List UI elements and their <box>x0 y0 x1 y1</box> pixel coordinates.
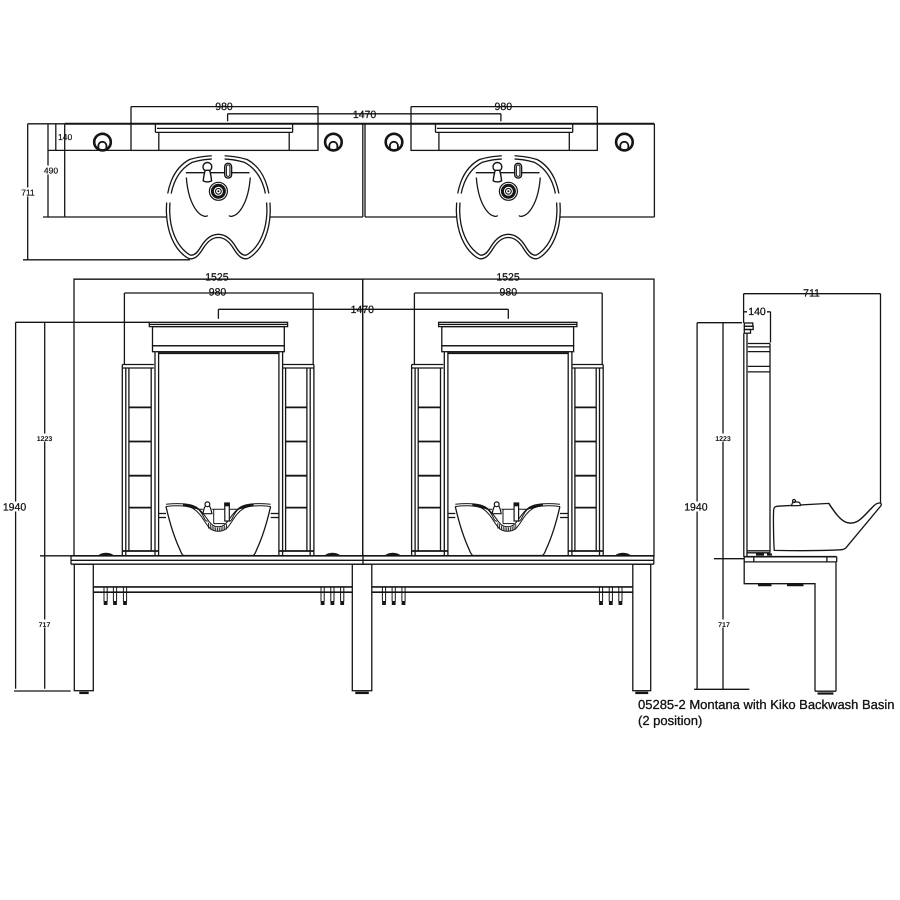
svg-text:(2 position): (2 position) <box>638 713 702 728</box>
svg-text:1940: 1940 <box>684 501 708 513</box>
svg-text:1940: 1940 <box>3 501 27 513</box>
svg-text:980: 980 <box>495 101 513 113</box>
svg-text:1470: 1470 <box>351 304 375 316</box>
svg-text:717: 717 <box>39 622 51 629</box>
svg-text:1223: 1223 <box>37 436 53 443</box>
svg-text:980: 980 <box>209 287 227 299</box>
svg-text:140: 140 <box>748 306 766 318</box>
svg-text:980: 980 <box>500 287 518 299</box>
svg-text:1470: 1470 <box>353 109 377 121</box>
svg-text:711: 711 <box>803 288 820 300</box>
svg-text:1223: 1223 <box>715 436 731 443</box>
svg-text:1525: 1525 <box>205 271 229 283</box>
svg-text:1525: 1525 <box>496 271 520 283</box>
svg-text:05285-2 Montana with Kiko Back: 05285-2 Montana with Kiko Backwash Basin <box>638 697 895 712</box>
svg-text:717: 717 <box>718 622 730 629</box>
svg-text:711: 711 <box>21 187 35 197</box>
svg-text:980: 980 <box>215 101 233 113</box>
svg-text:490: 490 <box>44 166 58 176</box>
svg-text:140: 140 <box>58 132 72 142</box>
